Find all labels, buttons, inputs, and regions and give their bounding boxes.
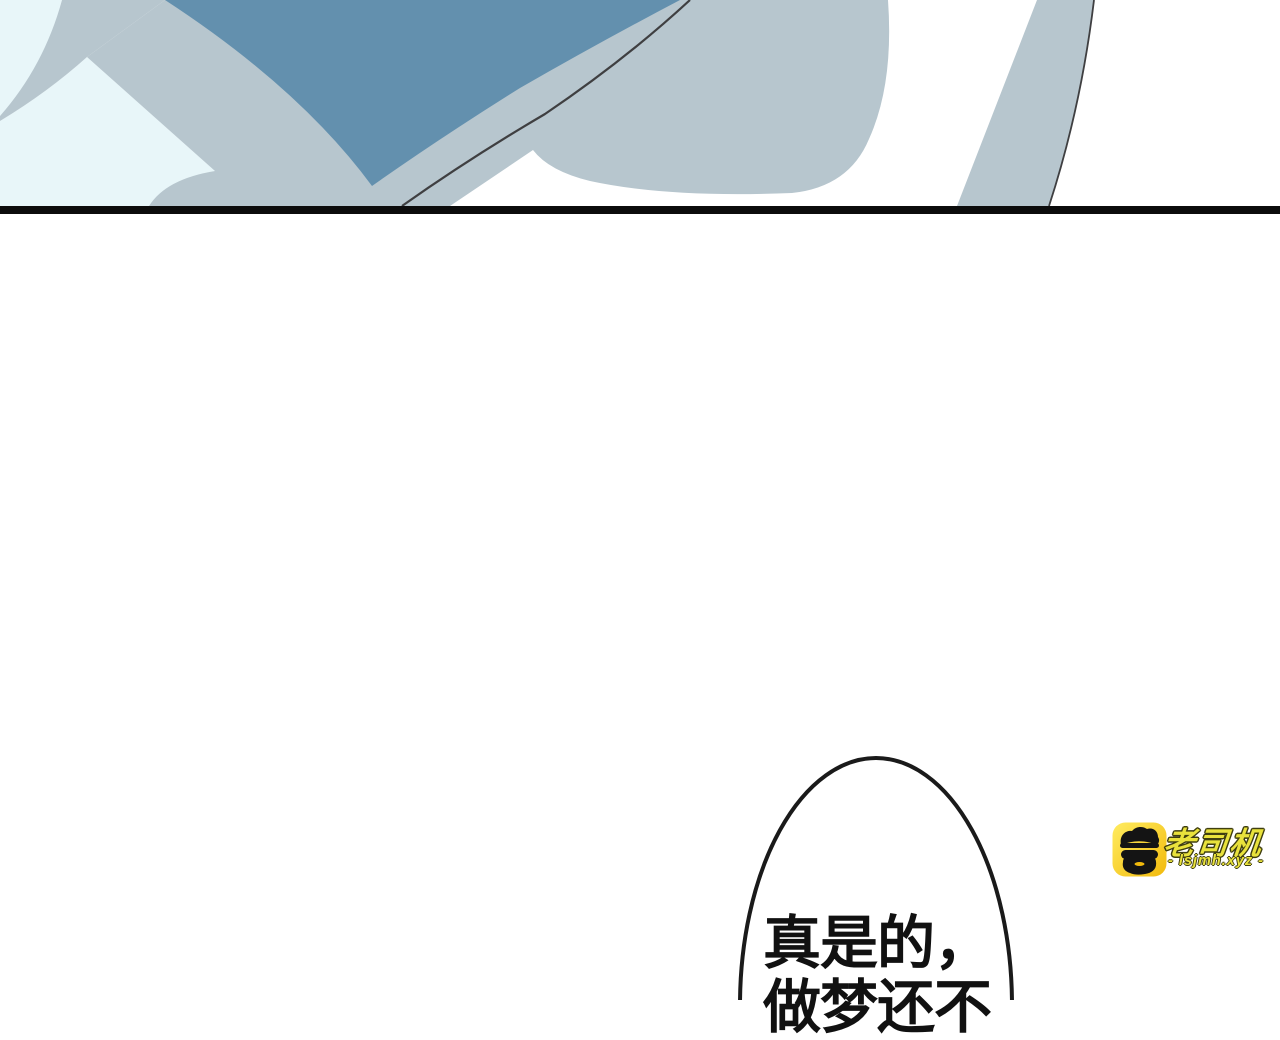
bubble-line-1: 真是的， xyxy=(763,912,1013,976)
mouth-shape xyxy=(1135,862,1145,866)
watermark-subtitle: - lsjmh.xyz - xyxy=(1168,853,1272,869)
driver-mascot-icon xyxy=(1112,822,1167,877)
manga-page: { "panel": { "colors": { "panel_bg": "#f… xyxy=(0,0,1280,1000)
speech-bubble-text: 真是的， 做梦还不 xyxy=(763,912,1013,1040)
cap-brim xyxy=(1120,843,1159,848)
panel-border-bar xyxy=(0,206,1280,214)
panel-illustration xyxy=(0,0,1280,206)
watermark: 老司机 - lsjmh.xyz - xyxy=(1112,820,1272,882)
page: 真是的， 做梦还不 老司机 - lsjmh.xyz - xyxy=(0,0,1280,1000)
bubble-line-2: 做梦还不 xyxy=(763,976,1013,1040)
